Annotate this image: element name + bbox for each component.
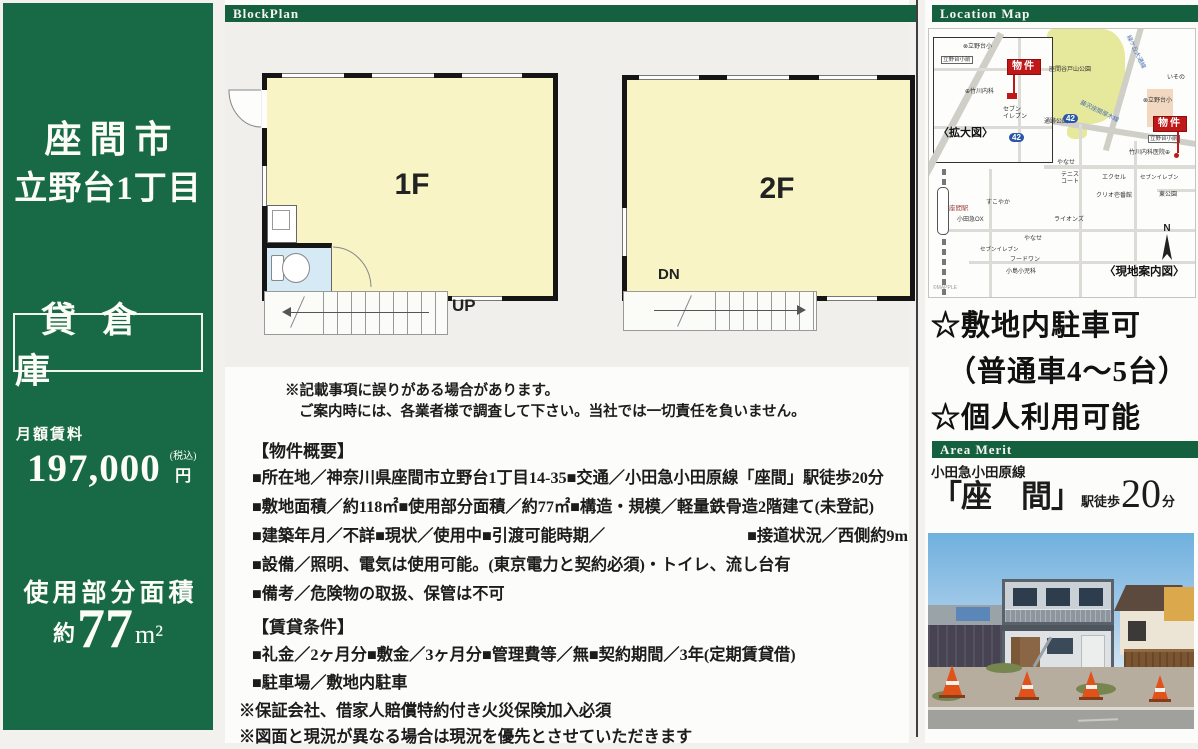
entrance-opening [262,90,267,128]
map-label: セブンイレブン [1140,175,1179,181]
dn-label: DN [658,266,680,283]
route-badge: 42 [1009,133,1024,142]
traffic-cone [1152,675,1171,702]
summary-line: ■敷地面積／約118㎡■使用部分面積／約77㎡■構造・規模／軽量鉄骨造2階建て(… [252,493,908,522]
right-column: Location Map N [925,0,1198,743]
property-type-box: 貸倉庫 [13,313,203,372]
map-label: やなせ [1024,236,1042,243]
station-access-row: 「座 間」 駅徒歩 20 分 [931,474,1175,514]
road [989,169,992,297]
summary-title: 【物件概要】 [252,437,354,462]
window-segment [462,73,522,78]
stair-arrow [654,310,798,311]
rent-unit-column: (税込) 円 [170,447,197,486]
map-label: セブン イレブン [1003,107,1027,121]
map-label: エクセル [1102,175,1126,182]
map-label: 東公園 [1159,192,1177,199]
area-value: 77 [77,601,133,657]
rent-value: 197,000 [27,449,161,488]
window-segment [262,166,267,206]
map-label: 座間谷戸山公園 [1049,67,1091,74]
station-name: 「座 間」 [931,480,1081,514]
rent-label: 月額賃料 [16,423,84,444]
location-map-header-bar: Location Map [932,5,1198,22]
toilet-room [267,243,332,291]
stair-arrowhead [797,305,806,315]
traffic-cone [1082,671,1103,700]
property-city: 座間市 [3,109,213,163]
property-pointer-line [1013,73,1015,93]
photo-blue-house [956,607,990,621]
map-label: 座間駅 [949,205,969,212]
photo-weeds [986,663,1022,673]
floor1-label: 1F [372,168,452,202]
disclaimer: ※記載事項に誤りがある場合があります。 ご案内時には、各業者様で調査して下さい。… [285,381,806,423]
location-map-header: Location Map [940,6,1030,22]
sink-basin [272,210,290,230]
station-suffix: 駅徒歩 [1081,491,1120,510]
photo-window [1046,588,1070,606]
rental-line: ■駐車場／敷地内駐車 [252,669,908,697]
property-photo [928,533,1194,729]
floorplan-2f: 2F DN [622,75,915,301]
window-segment [639,75,699,80]
summary-line: ■設備／照明、電気は使用可能。(東京電力と契約必須)・トイレ、流し台有 [252,551,908,580]
photo-window [1079,588,1103,606]
map-label: すこやか [986,200,1010,207]
rent-tax-note: (税込) [170,447,197,462]
road [1018,38,1021,162]
floorplan-area: 1F UP 2F DN [225,22,909,367]
compass-n-label: N [1153,223,1181,234]
rental-title: 【賃貸条件】 [252,613,354,638]
summary-line: ■備考／危険物の取扱、保管は不可 [252,580,908,609]
property-flag: 物件 [1153,116,1187,132]
property-flag: 物件 [1007,59,1041,75]
window-segment [282,73,344,78]
summary-line: ■建築年月／不詳■現状／使用中■引渡可能時期／■接道状況／西側約9m [252,522,908,551]
map-label: やなせ [1057,160,1075,167]
disclaimer-line2: ご案内時には、各業者様で調査して下さい。当社では一切責任を負いません。 [285,402,806,423]
map-label: ©MAPPLE [933,286,957,292]
up-label: UP [452,296,476,316]
stairs-1f [264,291,448,335]
stair-arrowhead [282,307,291,317]
window-segment [622,208,627,256]
map-label: 竹川内科医院⊕ [1129,150,1170,157]
station-shape [937,187,949,235]
area-merit-header-bar: Area Merit [932,441,1198,458]
column-divider [916,0,918,737]
entrance-door-arc [226,89,262,128]
center-column: BlockPlan 1F [225,0,909,743]
disclaimer-line1: ※記載事項に誤りがある場合があります。 [285,381,806,402]
highlight-parking-detail: （普通車4～5台） [931,348,1188,390]
sidebar: 座間市 立野台1丁目 貸倉庫 月額賃料 197,000 (税込) 円 使用部分面… [3,3,213,730]
window-segment [372,73,434,78]
toilet-door-arc [332,246,372,288]
highlight-parking: ☆敷地内駐車可 [931,302,1141,344]
area-row: 約 77 m² [3,601,213,657]
photo-road [928,710,1194,729]
floorplan-1f: 1F [262,73,558,301]
highlight-personal-use: ☆個人利用可能 [931,394,1141,436]
photo-white-door [1081,635,1105,670]
map-label: クリオ壱番館 [1096,193,1132,200]
photo-building-floor2 [1005,582,1111,622]
floor2-label: 2F [747,172,807,206]
property-pointer-line [1177,130,1179,153]
road [928,32,1004,177]
map-label: 立野台小前 [1148,135,1180,143]
property-type-label: 貸倉庫 [15,292,201,394]
stair-treads [310,292,447,334]
rental-lines: ■礼金／2ヶ月分■敷金／3ヶ月分■管理費等／無■契約期間／3年(定期賃貸借)■駐… [252,641,908,749]
photo-window [1013,588,1037,606]
stairs-2f [623,291,817,331]
sink-closet [267,205,297,243]
photo-building-floor1 [1005,631,1111,670]
stair-break-line [677,295,692,326]
map-label: 〈現地案内図〉 [1104,266,1185,279]
summary-lines: ■所在地／神奈川県座間市立野台1丁目14-35■交通／小田急小田原線「座間」駅徒… [252,464,908,609]
stair-arrow [291,312,429,313]
map-label: 立野台小前 [941,56,973,64]
photo-window [1128,621,1146,641]
map-label: テニス コート [1061,172,1079,186]
rental-line: ■礼金／2ヶ月分■敷金／3ヶ月分■管理費等／無■契約期間／3年(定期賃貸借) [252,641,908,669]
map-label: 小田急OX [957,217,984,224]
map-label: 小島小児科 [1006,269,1036,276]
map-label: いその [1167,75,1185,82]
rental-line: ※図面と現況が異なる場合は現況を優先とさせていただきます [239,723,908,749]
property-marker [1174,153,1179,158]
rent-unit: 円 [175,462,191,486]
map-label: ⊗立野台小 [1143,98,1172,105]
area-unit: m² [135,620,163,650]
map-label: フードワン [1010,257,1040,264]
blockplan-header: BlockPlan [233,6,299,22]
window-segment [727,75,789,80]
rental-line: ※保証会社、借家人賠償特約付き火災保険加入必須 [239,697,908,723]
window-segment [819,75,877,80]
compass: N [1153,223,1181,267]
map-label: ⊗立野台小 [963,44,992,51]
map-label: ⊕竹川内科 [965,89,994,96]
traffic-cone [942,665,965,698]
area-merit-header: Area Merit [940,442,1012,458]
route-badge: 42 [1063,114,1078,123]
photo-balcony-rail [1005,609,1111,622]
area-prefix: 約 [53,616,75,648]
blockplan-header-bar: BlockPlan [225,5,917,22]
toilet-bowl [282,253,310,283]
location-map: N ⊗立野台小立野台小前物件⊕竹川内科セブン イレブン〈拡大図〉42座間谷戸山公… [928,28,1196,298]
window-segment [827,296,877,301]
summary-line: ■所在地／神奈川県座間市立野台1丁目14-35■交通／小田急小田原線「座間」駅徒… [252,464,908,493]
compass-needle-icon [1159,234,1175,262]
road [1079,124,1082,297]
property-district: 立野台1丁目 [3,161,213,209]
rent-row: 197,000 (税込) 円 [27,447,196,488]
map-label: 〈拡大図〉 [938,127,993,140]
map-label: ライオンズ [1054,217,1084,224]
photo-orange-wall [1164,587,1194,621]
walk-minutes-unit: 分 [1162,491,1175,510]
map-label: セブンイレブン [980,247,1019,253]
property-marker [1007,93,1017,99]
walk-minutes: 20 [1121,474,1161,514]
traffic-cone [1018,671,1039,700]
photo-building [1002,579,1114,673]
